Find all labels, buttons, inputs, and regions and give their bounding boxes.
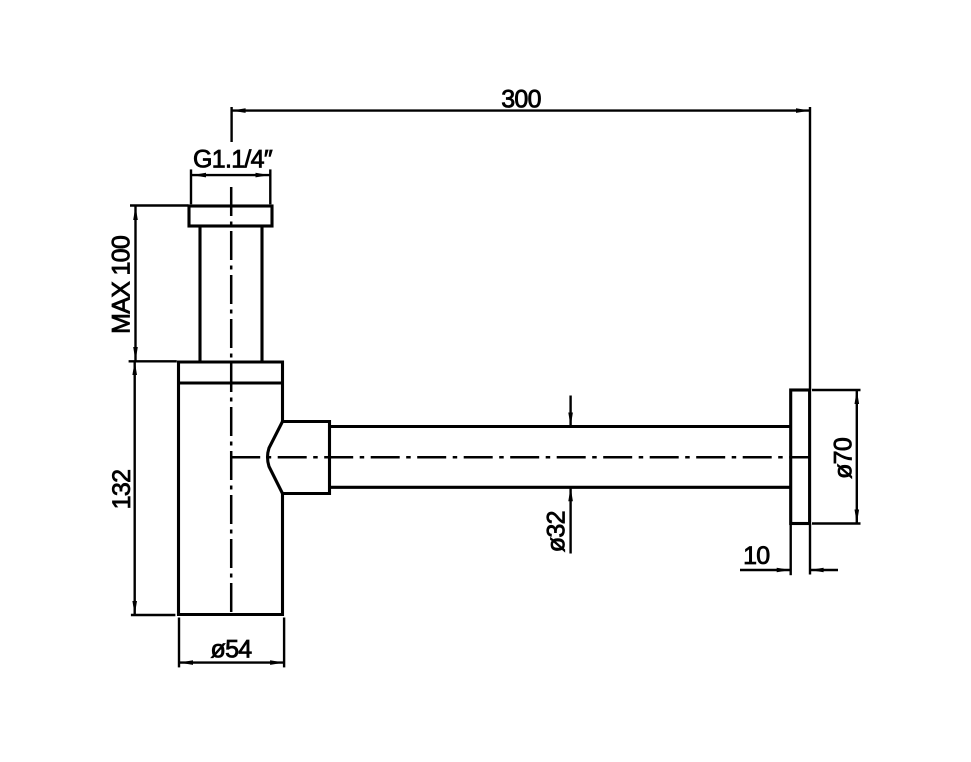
svg-text:300: 300 (501, 85, 541, 113)
svg-text:ø70: ø70 (830, 438, 858, 479)
svg-text:MAX 100: MAX 100 (108, 236, 136, 334)
svg-text:132: 132 (108, 470, 136, 510)
svg-text:ø54: ø54 (211, 636, 253, 664)
svg-text:ø32: ø32 (543, 511, 571, 552)
svg-text:10: 10 (743, 542, 769, 570)
svg-text:G1.1/4″: G1.1/4″ (193, 146, 273, 174)
